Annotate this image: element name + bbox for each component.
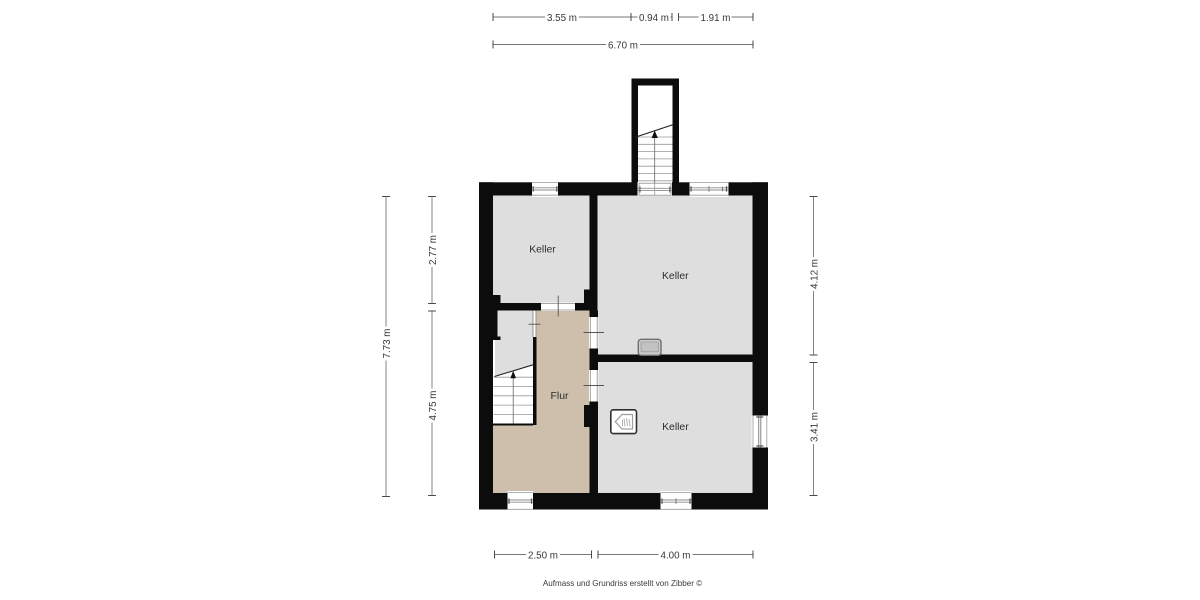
svg-text:0.94 m: 0.94 m [639, 13, 669, 24]
svg-text:Keller: Keller [529, 245, 556, 256]
svg-text:Aufmass und Grundriss erstellt: Aufmass und Grundriss erstellt von Zibbe… [543, 579, 702, 588]
svg-text:4.12 m: 4.12 m [810, 259, 821, 289]
svg-text:Keller: Keller [662, 271, 689, 282]
svg-text:6.70 m: 6.70 m [608, 40, 638, 51]
svg-text:4.75 m: 4.75 m [428, 391, 439, 421]
svg-text:4.00 m: 4.00 m [661, 550, 691, 561]
svg-text:1.91 m: 1.91 m [701, 13, 731, 24]
svg-text:3.55 m: 3.55 m [547, 13, 577, 24]
svg-text:2.50 m: 2.50 m [528, 550, 558, 561]
svg-text:7.73 m: 7.73 m [382, 329, 393, 359]
svg-text:Keller: Keller [662, 422, 689, 433]
svg-text:3.41 m: 3.41 m [810, 412, 821, 442]
svg-text:Flur: Flur [551, 391, 569, 402]
svg-text:2.77 m: 2.77 m [428, 235, 439, 265]
